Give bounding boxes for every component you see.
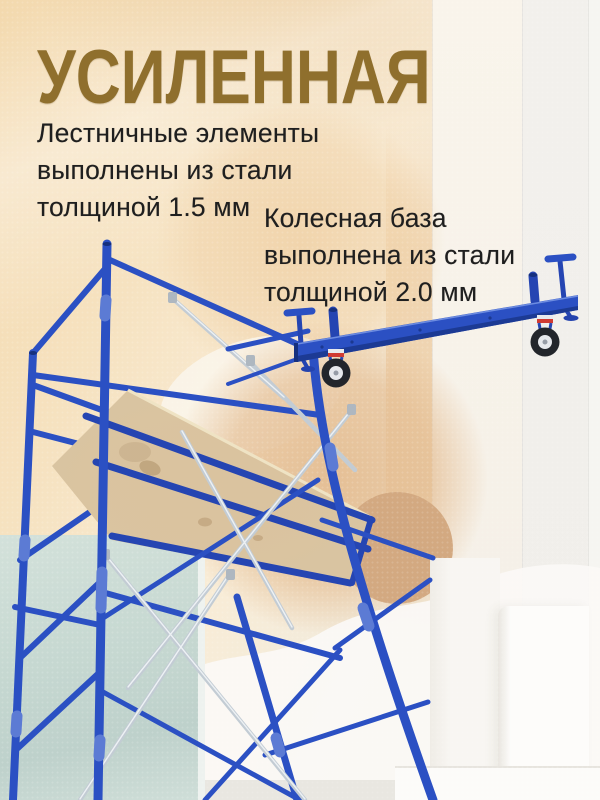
wood-shade <box>119 442 151 462</box>
leveling-foot-left <box>301 366 315 372</box>
feature-line: выполнены из стали <box>37 152 319 189</box>
socket-cap <box>529 273 538 277</box>
scaffold-tower <box>13 242 433 800</box>
feature-wheel-base: Колесная база выполнена из стали толщино… <box>264 200 515 311</box>
post-top-cap <box>29 351 37 355</box>
leveling-foot-right <box>564 315 579 321</box>
caster-wheel-right <box>531 315 560 357</box>
feature-line: Лестничные элементы <box>37 115 319 152</box>
headline: УСИЛЕННАЯ <box>37 38 431 118</box>
feature-line: выполнена из стали <box>264 237 515 274</box>
feature-line: толщиной 2.0 мм <box>264 274 515 311</box>
promo-banner: УСИЛЕННАЯ Лестничные элементы выполнены … <box>0 0 600 800</box>
post-top-cap <box>103 242 112 246</box>
wood-knot <box>253 535 263 541</box>
headline-text: УСИЛЕННАЯ <box>37 35 431 120</box>
feature-line: Колесная база <box>264 200 515 237</box>
wood-knot <box>198 518 212 527</box>
